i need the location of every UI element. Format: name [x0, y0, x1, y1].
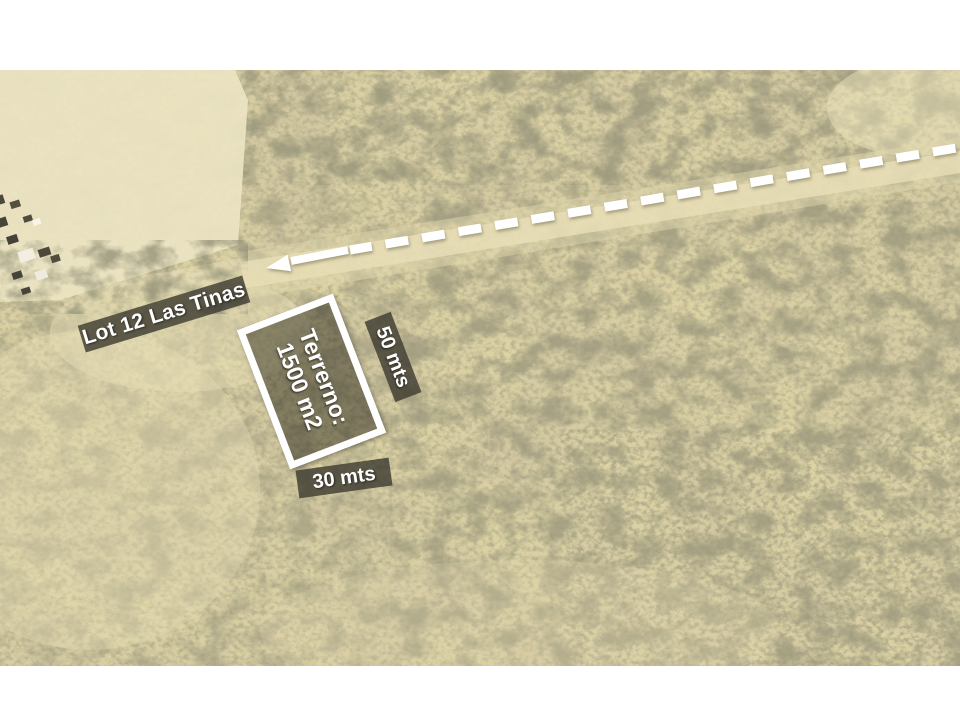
route-arrow-dashes: [350, 142, 960, 250]
route-arrow: [0, 70, 960, 666]
lot-area-label: Terrerno: 1500 m2: [269, 325, 353, 437]
slide-background: Lot 12 Las Tinas Terrerno: 1500 m2 50 mt…: [0, 0, 960, 720]
satellite-photo: Lot 12 Las Tinas Terrerno: 1500 m2 50 mt…: [0, 70, 960, 666]
route-arrowhead-icon: [266, 255, 291, 272]
route-arrow-shaft: [291, 250, 348, 261]
